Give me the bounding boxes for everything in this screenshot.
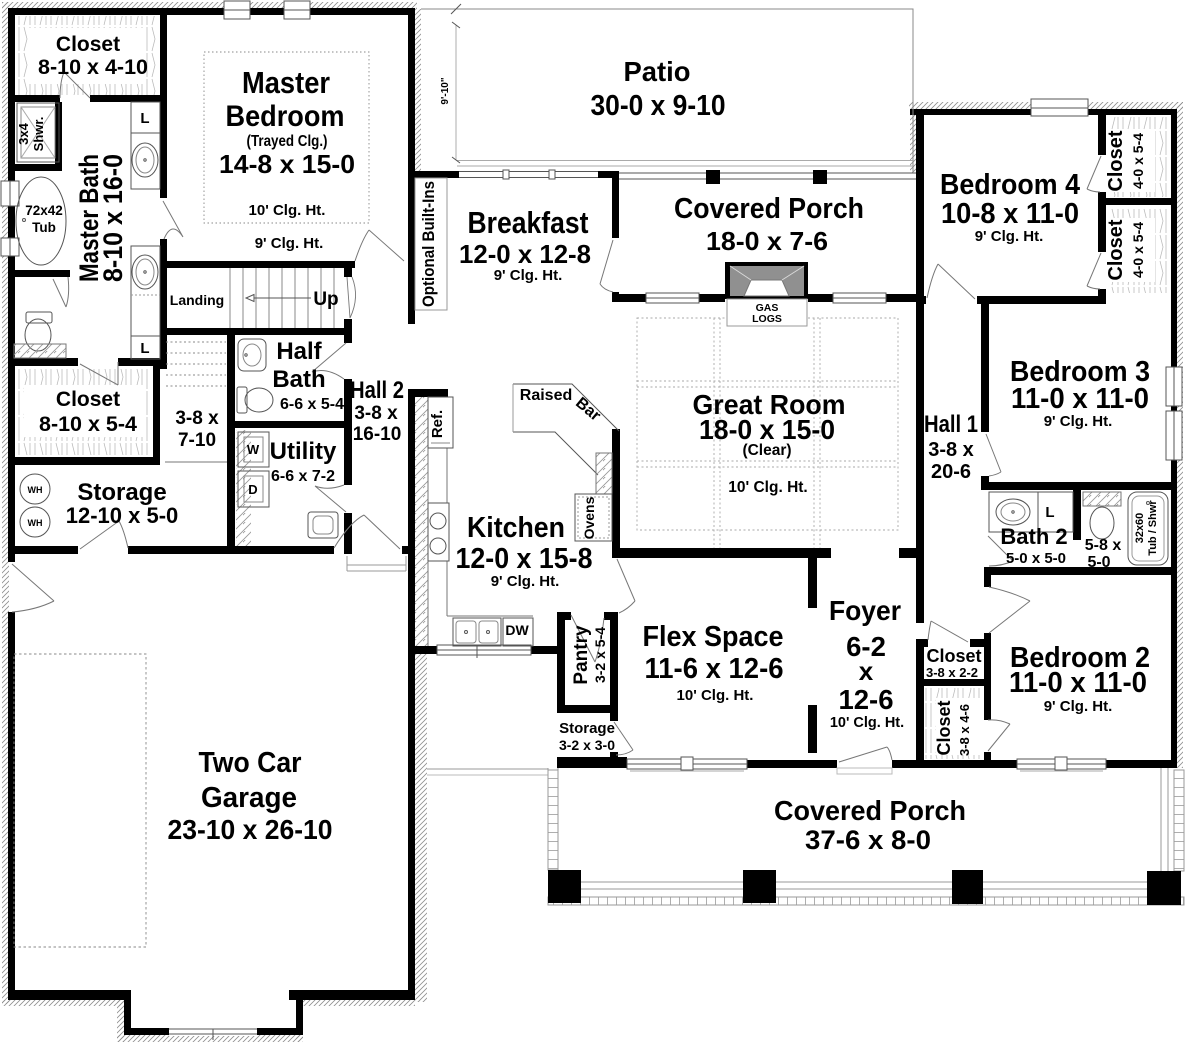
svg-text:Garage: Garage — [201, 782, 297, 814]
svg-text:11-6 x 12-6: 11-6 x 12-6 — [645, 653, 784, 685]
svg-text:4-0 x 5-4: 4-0 x 5-4 — [1130, 222, 1146, 278]
svg-text:3-2 x 3-0: 3-2 x 3-0 — [559, 737, 615, 753]
svg-text:Storage: Storage — [77, 479, 166, 506]
svg-text:Bath 2: Bath 2 — [1000, 524, 1067, 549]
svg-text:7-10: 7-10 — [178, 430, 216, 451]
svg-text:5-0: 5-0 — [1087, 554, 1110, 571]
svg-text:9' Clg. Ht.: 9' Clg. Ht. — [494, 267, 563, 284]
svg-text:(Clear): (Clear) — [742, 442, 791, 459]
svg-text:Covered Porch: Covered Porch — [674, 193, 864, 225]
svg-text:32x60: 32x60 — [1134, 513, 1146, 544]
svg-text:4-0 x 5-4: 4-0 x 5-4 — [1130, 133, 1146, 189]
svg-text:Utility: Utility — [270, 438, 337, 465]
svg-text:WH: WH — [28, 485, 43, 495]
svg-text:11-0 x 11-0: 11-0 x 11-0 — [1011, 383, 1149, 415]
svg-text:DW: DW — [505, 622, 529, 638]
svg-text:WH: WH — [28, 518, 43, 528]
svg-text:8-10 x 16-0: 8-10 x 16-0 — [98, 154, 128, 282]
svg-text:10-8 x 11-0: 10-8 x 11-0 — [941, 198, 1079, 230]
svg-text:L: L — [140, 340, 149, 357]
svg-text:72x42: 72x42 — [25, 203, 63, 218]
svg-text:3x4: 3x4 — [16, 122, 31, 144]
svg-text:18-0 x 15-0: 18-0 x 15-0 — [699, 414, 835, 445]
svg-text:14-8 x 15-0: 14-8 x 15-0 — [219, 149, 355, 179]
svg-text:Patio: Patio — [624, 56, 691, 87]
svg-text:Bedroom: Bedroom — [226, 100, 345, 133]
svg-text:37-6 x 8-0: 37-6 x 8-0 — [805, 825, 931, 855]
svg-text:Closet: Closet — [56, 33, 120, 56]
svg-text:16-10: 16-10 — [353, 424, 402, 445]
svg-text:12-10 x 5-0: 12-10 x 5-0 — [66, 503, 179, 528]
svg-text:Breakfast: Breakfast — [468, 206, 589, 240]
svg-text:9' Clg. Ht.: 9' Clg. Ht. — [255, 235, 324, 252]
svg-text:18-0 x 7-6: 18-0 x 7-6 — [706, 226, 828, 256]
svg-text:W: W — [247, 442, 260, 457]
svg-text:Closet: Closet — [926, 646, 981, 666]
svg-text:11-0 x 11-0: 11-0 x 11-0 — [1009, 667, 1147, 699]
svg-text:Closet: Closet — [56, 388, 120, 411]
svg-text:D: D — [248, 482, 257, 497]
svg-text:Closet: Closet — [1105, 130, 1127, 191]
svg-text:(Trayed Clg.): (Trayed Clg.) — [247, 133, 328, 150]
svg-text:9' Clg. Ht.: 9' Clg. Ht. — [975, 228, 1044, 245]
svg-text:9' Clg. Ht.: 9' Clg. Ht. — [491, 573, 560, 590]
svg-text:9' Clg. Ht.: 9' Clg. Ht. — [1044, 698, 1113, 715]
svg-text:Tub / Shwr: Tub / Shwr — [1147, 500, 1159, 556]
svg-text:Flex Space: Flex Space — [643, 621, 784, 653]
svg-text:30-0 x 9-10: 30-0 x 9-10 — [591, 90, 726, 122]
svg-text:Optional Built-Ins: Optional Built-Ins — [419, 181, 438, 307]
svg-text:10' Clg. Ht.: 10' Clg. Ht. — [677, 687, 754, 704]
svg-text:Hall 1: Hall 1 — [924, 411, 978, 438]
svg-text:10' Clg. Ht.: 10' Clg. Ht. — [830, 715, 904, 731]
svg-text:3-8 x 4-6: 3-8 x 4-6 — [957, 704, 972, 756]
svg-text:3-8 x: 3-8 x — [928, 439, 974, 461]
svg-text:Bath: Bath — [272, 366, 325, 393]
svg-text:Shwr.: Shwr. — [31, 117, 46, 152]
svg-text:Hall 2: Hall 2 — [350, 377, 404, 404]
svg-text:5-8 x: 5-8 x — [1085, 537, 1122, 554]
svg-text:3-2 x 5-4: 3-2 x 5-4 — [592, 627, 608, 683]
svg-text:12-0 x 15-8: 12-0 x 15-8 — [456, 543, 593, 575]
svg-text:Tub: Tub — [32, 220, 56, 235]
svg-text:5-0 x 5-0: 5-0 x 5-0 — [1006, 550, 1066, 567]
svg-text:3-8 x 2-2: 3-8 x 2-2 — [926, 665, 978, 680]
svg-text:Up: Up — [313, 289, 338, 310]
svg-text:9'-10": 9'-10" — [440, 77, 451, 104]
svg-text:x: x — [859, 656, 874, 686]
svg-text:3-8 x: 3-8 x — [354, 403, 398, 424]
svg-text:10' Clg. Ht.: 10' Clg. Ht. — [249, 202, 326, 219]
svg-text:8-10 x 4-10: 8-10 x 4-10 — [38, 55, 148, 79]
svg-text:Closet: Closet — [1105, 219, 1127, 280]
svg-text:Storage: Storage — [559, 720, 615, 737]
svg-text:Two Car: Two Car — [199, 747, 302, 779]
svg-text:Landing: Landing — [170, 292, 224, 308]
svg-text:Bedroom 4: Bedroom 4 — [940, 169, 1080, 201]
svg-text:Pantry: Pantry — [571, 625, 592, 685]
svg-text:6-6 x 7-2: 6-6 x 7-2 — [271, 468, 335, 485]
svg-text:Kitchen: Kitchen — [467, 512, 565, 544]
svg-text:Foyer: Foyer — [829, 595, 901, 626]
svg-text:Ovens: Ovens — [581, 496, 597, 539]
svg-text:12-0 x 12-8: 12-0 x 12-8 — [459, 239, 591, 269]
svg-text:23-10 x 26-10: 23-10 x 26-10 — [168, 814, 333, 845]
svg-text:LOGS: LOGS — [752, 313, 782, 325]
svg-text:Raised: Raised — [520, 387, 572, 404]
svg-text:L: L — [140, 110, 149, 127]
svg-text:Covered Porch: Covered Porch — [774, 795, 966, 826]
svg-text:20-6: 20-6 — [931, 461, 971, 483]
svg-text:L: L — [1045, 504, 1054, 521]
svg-text:Half: Half — [276, 338, 322, 365]
svg-text:8-10 x 5-4: 8-10 x 5-4 — [39, 412, 137, 436]
svg-text:6-6 x 5-4: 6-6 x 5-4 — [280, 396, 344, 413]
svg-text:12-6: 12-6 — [838, 684, 893, 715]
svg-text:3-8 x: 3-8 x — [175, 408, 219, 429]
svg-text:Ref.: Ref. — [429, 410, 446, 438]
svg-text:Closet: Closet — [934, 700, 954, 755]
svg-text:10' Clg. Ht.: 10' Clg. Ht. — [728, 479, 807, 496]
svg-text:9' Clg. Ht.: 9' Clg. Ht. — [1044, 413, 1113, 430]
svg-text:Master: Master — [242, 66, 330, 100]
